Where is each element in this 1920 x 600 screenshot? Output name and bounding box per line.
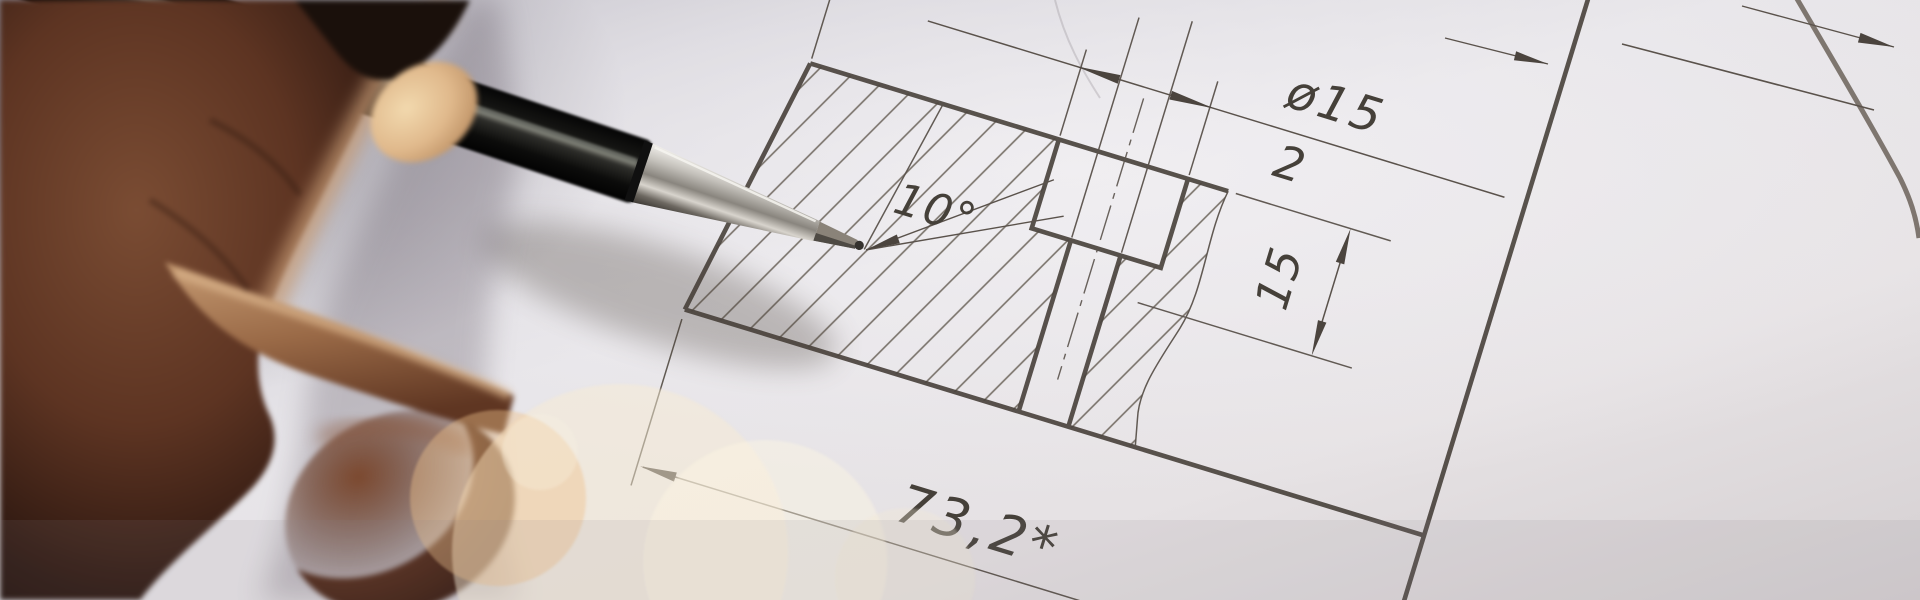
bottom-vignette (0, 520, 1920, 600)
flare-circle (502, 414, 578, 490)
photo-scene: ø15 2 15 10° 73,2* (0, 0, 1920, 600)
scene-canvas: ø15 2 15 10° 73,2* (0, 0, 1920, 600)
